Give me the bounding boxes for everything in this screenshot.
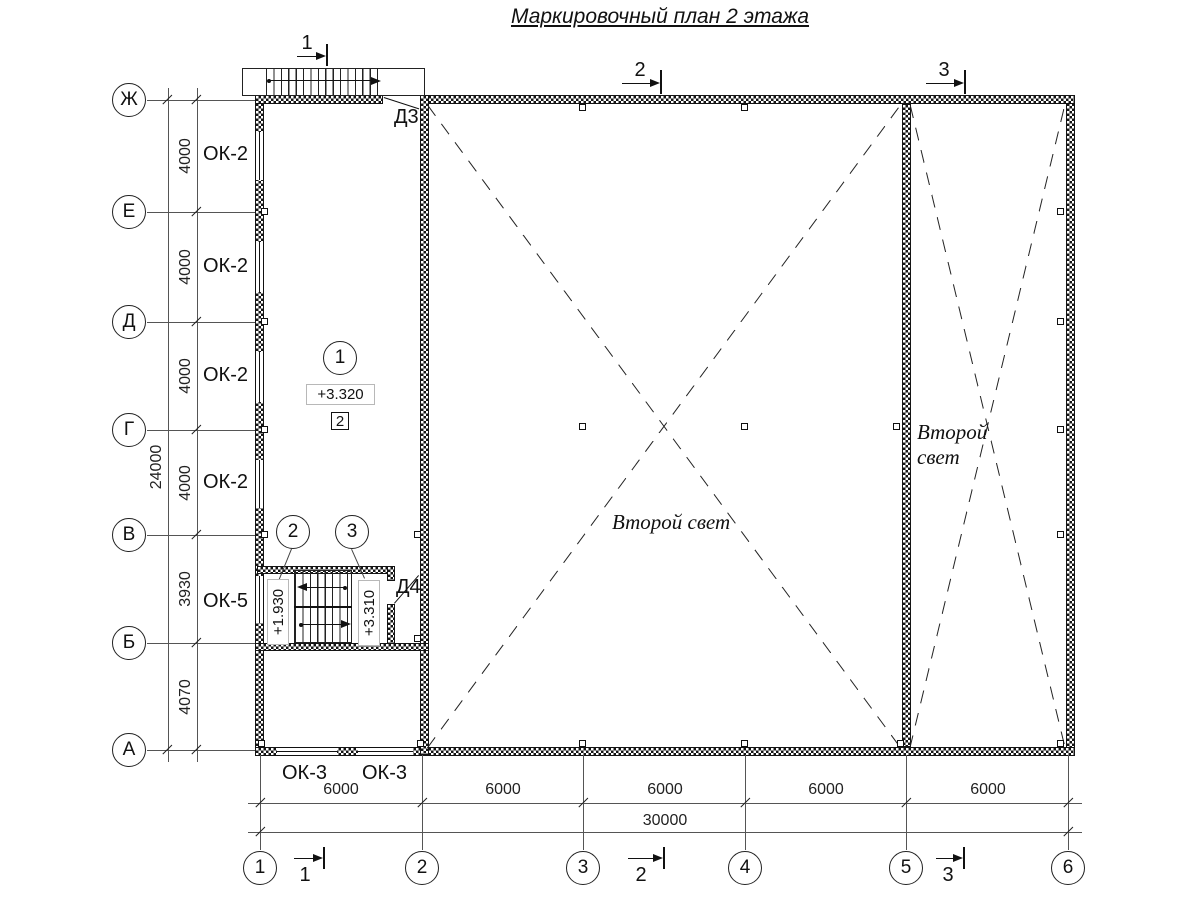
section-mark-1-top: 1 [296, 32, 318, 55]
axis-circle-col-2: 2 [405, 851, 439, 885]
axis-label: Ж [120, 89, 138, 111]
arrow-right-icon [371, 77, 381, 85]
exterior-stair-arrow-line [269, 80, 373, 81]
axis-line-row-d [147, 322, 255, 323]
window-ok2-2 [255, 242, 264, 292]
column-marker [1057, 318, 1064, 325]
wall-stair-door-jamb [387, 566, 395, 581]
dim-col-4: 6000 [786, 781, 866, 799]
label-window-ok2: ОК-2 [203, 255, 248, 278]
callout-leader [351, 549, 365, 579]
callout-leader [278, 549, 292, 581]
column-marker [261, 208, 268, 215]
level-mark-stair-lower: +1.930 [267, 579, 289, 645]
column-marker [261, 426, 268, 433]
axis-label: Д [123, 311, 136, 333]
dim-row-3: 4000 [177, 341, 195, 411]
column-marker [579, 740, 586, 747]
dim-col-3: 6000 [625, 781, 705, 799]
axis-line-row-zh [147, 100, 255, 101]
dim-line-vertical-overall [168, 88, 169, 762]
room-label-line1: Второй [917, 420, 987, 445]
arrow-left-icon [297, 583, 307, 591]
room-label-second-light: Второй свет [612, 510, 730, 535]
callout-label: 2 [336, 413, 344, 430]
axis-circle-col-1: 1 [243, 851, 277, 885]
dim-row-5: 3930 [177, 554, 195, 624]
axis-line-row-v [147, 535, 255, 536]
section-tick [660, 70, 662, 94]
column-marker [414, 531, 421, 538]
axis-label: 4 [740, 857, 751, 879]
dim-line-horizontal-segments [248, 803, 1082, 804]
section-tick [663, 847, 665, 869]
arrow-right-icon [313, 854, 323, 862]
axis-circle-row-g: Г [112, 413, 146, 447]
axis-circle-col-3: 3 [566, 851, 600, 885]
column-marker [579, 104, 586, 111]
room-label-line2: свет [917, 445, 987, 470]
window-ok2-4 [255, 460, 264, 508]
floor-plan-drawing: Маркировочный план 2 этажа 4000 4000 400… [0, 0, 1200, 900]
column-marker [417, 740, 424, 747]
column-marker [261, 318, 268, 325]
stair-lower-arrow-line [302, 624, 344, 625]
column-marker [579, 423, 586, 430]
column-marker [741, 740, 748, 747]
dim-row-1: 4000 [177, 121, 195, 191]
wall-axis-5 [902, 104, 911, 747]
dim-line-horizontal-overall [248, 832, 1082, 833]
arrow-right-icon [953, 854, 963, 862]
arrow-right-icon [650, 79, 660, 87]
stair-upper-arrow-line [301, 587, 345, 588]
callout-label: 2 [288, 521, 299, 543]
column-marker [258, 740, 265, 747]
axis-circle-col-4: 4 [728, 851, 762, 885]
window-ok5 [255, 576, 264, 623]
wall-axis-2 [420, 95, 429, 755]
arrow-right-icon [341, 620, 351, 628]
label-window-ok5: ОК-5 [203, 590, 248, 613]
dim-row-2: 4000 [177, 232, 195, 302]
column-marker [261, 531, 268, 538]
section-mark-1-bottom: 1 [294, 864, 316, 887]
wall-right-exterior [1066, 95, 1075, 755]
section-arrow-line [628, 858, 655, 859]
section-mark-3-bottom: 3 [937, 864, 959, 887]
column-marker [741, 423, 748, 430]
axis-label: 5 [901, 857, 912, 879]
section-mark-2-top: 2 [629, 59, 651, 82]
window-ok2-3 [255, 352, 264, 402]
dim-col-1: 6000 [301, 781, 381, 799]
column-marker [741, 104, 748, 111]
axis-label: Г [124, 419, 134, 441]
axis-circle-row-v: В [112, 518, 146, 552]
interior-stair-landing-edge [294, 606, 352, 608]
callout-label: 3 [347, 521, 358, 543]
axis-label: А [123, 739, 136, 761]
level-mark-main: +3.320 [306, 384, 375, 405]
column-marker [1057, 426, 1064, 433]
section-arrow-line [622, 83, 651, 84]
section-tick [323, 847, 325, 869]
callout-circle-2: 2 [276, 515, 310, 549]
axis-circle-row-e: Е [112, 195, 146, 229]
axis-line-row-a [147, 750, 255, 751]
exterior-stair-treads [266, 68, 384, 96]
axis-circle-row-d: Д [112, 305, 146, 339]
window-ok3-1 [277, 747, 337, 756]
axis-line-row-b [147, 643, 255, 644]
column-marker [893, 423, 900, 430]
wall-left-exterior [255, 95, 264, 755]
dim-col-2: 6000 [463, 781, 543, 799]
axis-label: В [123, 524, 136, 546]
section-tick [963, 847, 965, 869]
axis-label: Е [123, 201, 136, 223]
column-marker [1057, 208, 1064, 215]
column-marker [1057, 740, 1064, 747]
wall-top-left-segment [255, 95, 383, 104]
section-arrow-line [926, 83, 955, 84]
section-mark-2-bottom: 2 [630, 864, 652, 887]
dim-row-4: 4000 [177, 448, 195, 518]
callout-label: 1 [335, 347, 346, 369]
window-ok3-2 [358, 747, 413, 756]
dim-line-vertical-segments [197, 88, 198, 762]
callout-circle-1: 1 [323, 341, 357, 375]
label-door-d4: Д4 [396, 576, 421, 599]
column-marker [897, 740, 904, 747]
wall-top-main [420, 95, 1075, 104]
column-marker [414, 635, 421, 642]
label-window-ok2: ОК-2 [203, 471, 248, 494]
arrow-right-icon [653, 854, 663, 862]
axis-circle-col-6: 6 [1051, 851, 1085, 885]
axis-label: 2 [417, 857, 428, 879]
room-label-second-light-2: Второй свет [917, 420, 987, 470]
arrow-right-icon [316, 52, 326, 60]
axis-label: 6 [1063, 857, 1074, 879]
column-marker [1057, 531, 1064, 538]
axis-line-row-e [147, 212, 255, 213]
section-tick [326, 44, 328, 66]
drawing-title: Маркировочный план 2 этажа [400, 5, 920, 29]
label-window-ok2: ОК-2 [203, 143, 248, 166]
axis-label: Б [123, 632, 135, 654]
arrow-right-icon [954, 79, 964, 87]
callout-circle-3: 3 [335, 515, 369, 549]
label-door-d3: Д3 [394, 106, 419, 129]
label-window-ok2: ОК-2 [203, 364, 248, 387]
callout-square-2: 2 [331, 412, 349, 430]
axis-circle-col-5: 5 [889, 851, 923, 885]
section-tick [964, 70, 966, 94]
dim-col-overall: 30000 [625, 812, 705, 830]
axis-label: 3 [578, 857, 589, 879]
section-mark-3-top: 3 [933, 59, 955, 82]
wall-stair-right [387, 604, 395, 644]
axis-circle-row-b: Б [112, 626, 146, 660]
window-ok2-1 [255, 132, 264, 180]
axis-label: 1 [255, 857, 266, 879]
axis-circle-row-a: А [112, 733, 146, 767]
level-mark-stair-upper: +3.310 [358, 580, 380, 646]
dim-col-5: 6000 [948, 781, 1028, 799]
dim-row-overall: 24000 [148, 427, 166, 507]
dim-row-6: 4070 [177, 662, 195, 732]
axis-circle-row-zh: Ж [112, 83, 146, 117]
